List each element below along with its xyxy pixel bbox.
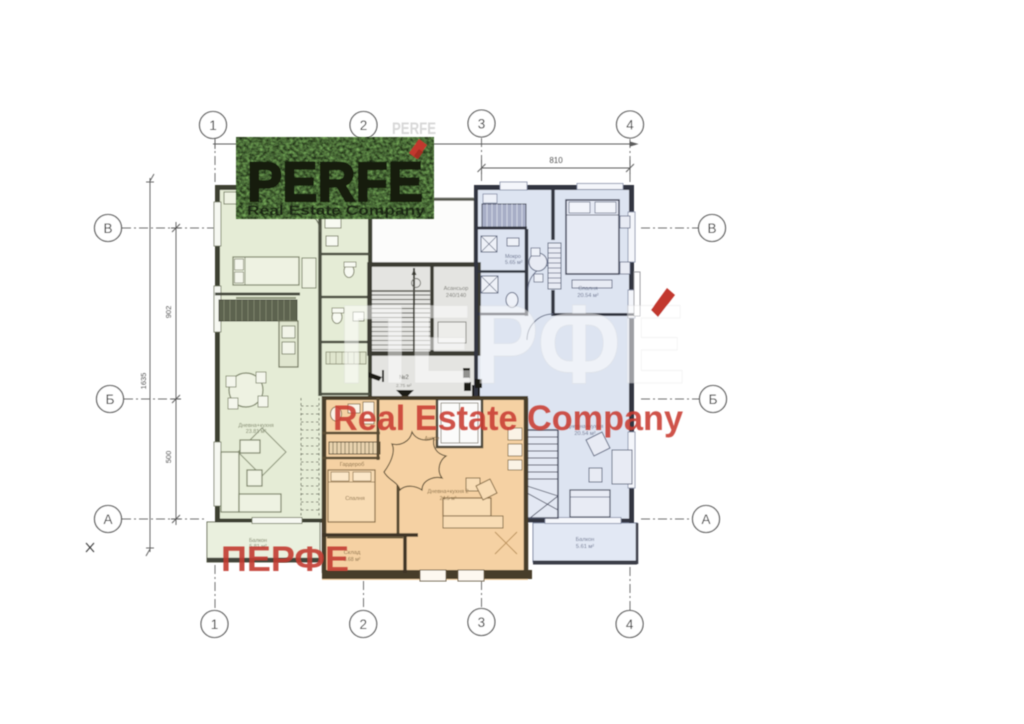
svg-text:24.5 м²: 24.5 м² — [440, 496, 457, 502]
svg-text:3: 3 — [478, 116, 486, 131]
svg-text:1635: 1635 — [139, 373, 148, 390]
svg-text:4: 4 — [626, 617, 634, 632]
svg-text:Real Estate Company: Real Estate Company — [333, 399, 684, 438]
svg-text:А: А — [103, 512, 112, 527]
svg-text:Real Estate Company: Real Estate Company — [247, 202, 425, 218]
svg-text:В: В — [103, 221, 112, 236]
svg-text:1: 1 — [209, 118, 217, 133]
svg-text:А: А — [701, 512, 710, 527]
svg-text:Балкон: Балкон — [576, 537, 595, 543]
svg-text:В: В — [707, 221, 716, 236]
svg-text:810: 810 — [549, 156, 563, 165]
svg-text:2: 2 — [360, 118, 368, 133]
svg-text:Б: Б — [709, 392, 718, 407]
svg-text:5.65 м²: 5.65 м² — [505, 260, 523, 266]
svg-text:1: 1 — [211, 617, 219, 632]
svg-text:5.61 м²: 5.61 м² — [576, 544, 594, 550]
svg-text:ПЕРФЕ: ПЕРФЕ — [221, 540, 349, 579]
svg-text:4: 4 — [626, 117, 634, 132]
svg-text:500: 500 — [164, 451, 173, 464]
svg-text:2: 2 — [359, 617, 367, 632]
svg-text:Гардероб: Гардероб — [340, 462, 365, 468]
svg-text:3: 3 — [478, 615, 486, 630]
svg-text:Спалня: Спалня — [345, 496, 365, 502]
svg-text:Дневна+кухня 2: Дневна+кухня 2 — [427, 489, 468, 495]
svg-text:902: 902 — [164, 306, 173, 319]
svg-text:ПЕРФЕ: ПЕРФЕ — [338, 282, 686, 407]
svg-text:PERFE: PERFE — [392, 119, 436, 138]
svg-text:Б: Б — [106, 392, 115, 407]
